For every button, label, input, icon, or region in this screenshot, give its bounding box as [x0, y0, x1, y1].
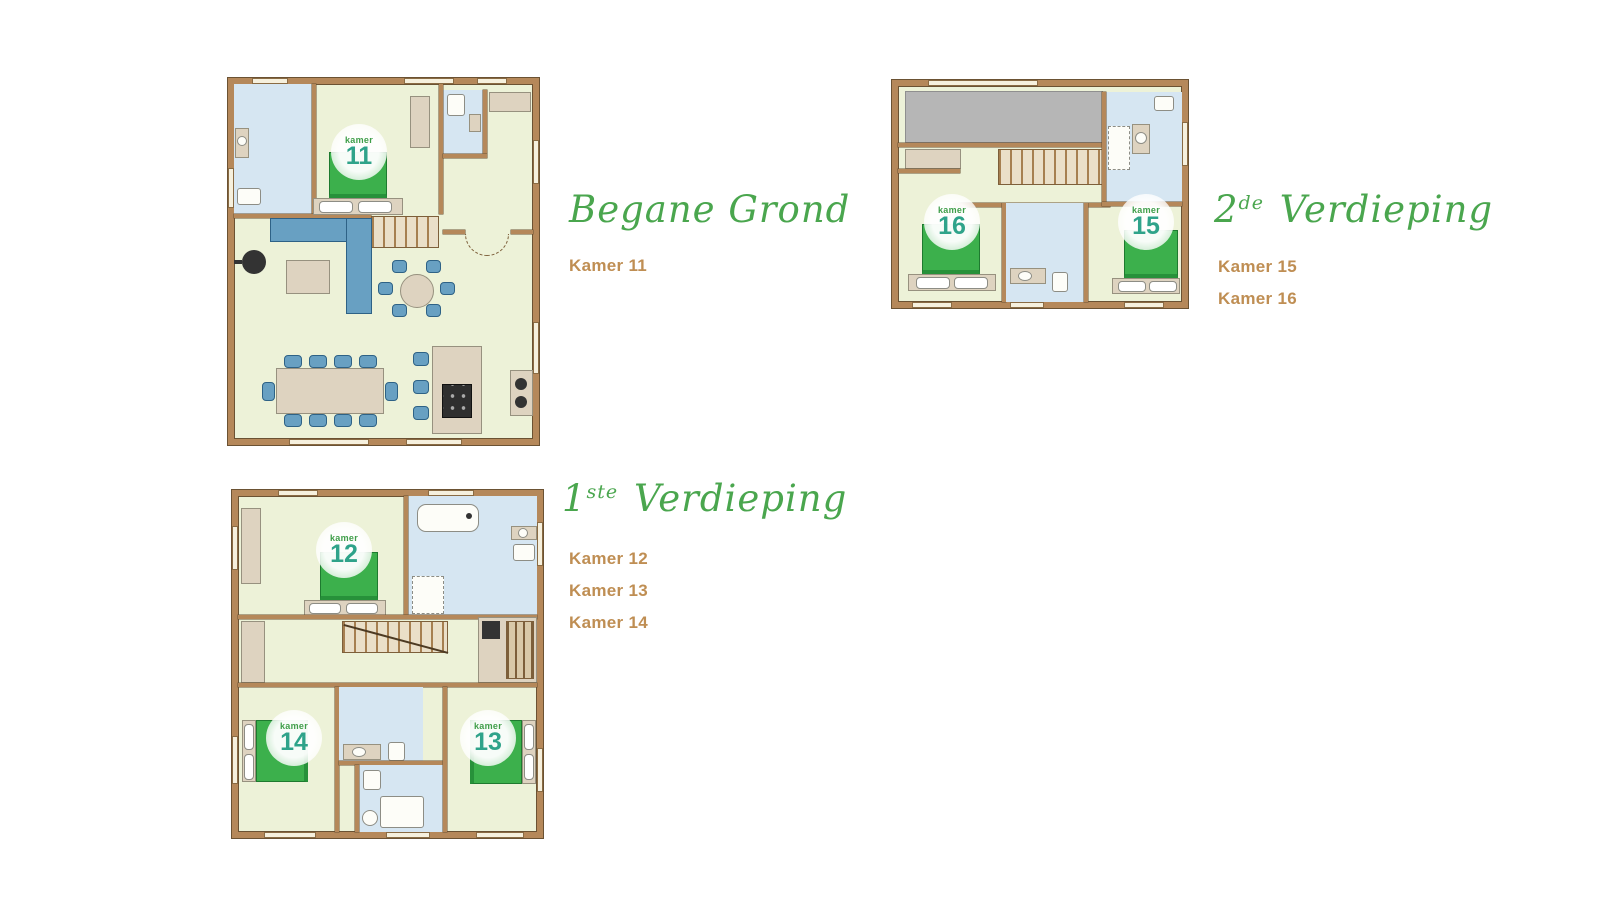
window: [278, 490, 318, 496]
window: [404, 78, 454, 84]
room-label-kamer-13: Kamer 13: [569, 581, 648, 601]
title-suffix: de: [1239, 192, 1264, 214]
kitchen-sink-counter: [510, 370, 533, 416]
bar-stool: [413, 406, 429, 420]
wood-stove: [242, 250, 266, 274]
wall: [355, 765, 359, 832]
pillow: [244, 754, 254, 780]
window: [228, 168, 234, 208]
floor-plan-eerste-verdieping: kamer 12 kamer 14 kamer 13: [232, 490, 543, 838]
sink: [237, 136, 247, 146]
chair: [426, 260, 441, 273]
badge-number: 15: [1132, 215, 1160, 239]
sink: [1135, 132, 1147, 144]
floor-plan-begane-grond: kamer 11: [228, 78, 539, 445]
wall: [483, 90, 487, 154]
room-badge-kamer-12: kamer 12: [316, 522, 372, 578]
chair: [378, 282, 393, 295]
window: [289, 439, 369, 445]
door-arc: [487, 234, 509, 256]
window: [252, 78, 288, 84]
wall: [511, 230, 533, 234]
window: [477, 78, 507, 84]
window: [533, 140, 539, 184]
bar-stool: [413, 352, 429, 366]
title-number: 1: [562, 477, 587, 520]
stairs: [371, 216, 439, 248]
pillow: [346, 603, 378, 614]
pillow: [916, 277, 950, 289]
room-badge-kamer-16: kamer 16: [924, 194, 980, 250]
pillow: [319, 201, 353, 213]
room-badge-kamer-11: kamer 11: [331, 124, 387, 180]
wall: [443, 687, 447, 832]
pillow: [1149, 281, 1177, 292]
floor-plan-tweede-verdieping: kamer 16 kamer 15: [892, 80, 1188, 308]
room-badge-kamer-14: kamer 14: [266, 710, 322, 766]
sink: [518, 528, 528, 538]
floor-title-eerste-verdieping: 1ste Verdieping: [562, 477, 847, 520]
chair: [440, 282, 455, 295]
toilet: [388, 742, 405, 761]
sink: [362, 810, 378, 826]
toilet: [447, 94, 465, 116]
shower: [380, 796, 424, 828]
chair: [359, 355, 377, 368]
room-label-kamer-14: Kamer 14: [569, 613, 648, 633]
sauna-stove: [482, 621, 500, 639]
window: [406, 439, 462, 445]
window: [928, 80, 1038, 86]
stove: [442, 384, 472, 418]
badge-number: 12: [330, 543, 358, 567]
sink-cabinet: [469, 114, 481, 132]
chair: [284, 355, 302, 368]
wardrobe: [410, 96, 430, 148]
stove-pipe: [234, 260, 242, 264]
coffee-table: [286, 260, 330, 294]
chair: [392, 260, 407, 273]
toilet: [363, 770, 381, 790]
wall: [443, 230, 465, 234]
sauna-bench: [506, 621, 534, 679]
toilet: [237, 188, 261, 205]
chair: [334, 355, 352, 368]
toilet: [1154, 96, 1174, 111]
wall: [439, 84, 443, 214]
pillow: [1118, 281, 1146, 292]
shower: [412, 576, 444, 614]
pillow: [358, 201, 392, 213]
title-name: Begane Grond: [569, 188, 850, 231]
dining-table: [276, 368, 384, 414]
room-label-kamer-15: Kamer 15: [1218, 257, 1297, 277]
wall: [1084, 203, 1088, 302]
sink: [1018, 271, 1032, 281]
room-label-kamer-12: Kamer 12: [569, 549, 648, 569]
badge-number: 11: [346, 145, 372, 169]
wall: [443, 154, 487, 158]
door-arc: [465, 234, 487, 256]
window: [533, 322, 539, 374]
cabinet: [489, 92, 531, 112]
chair: [334, 414, 352, 427]
pillow: [954, 277, 988, 289]
window: [1182, 122, 1188, 166]
badge-number: 16: [938, 215, 966, 239]
room-badge-kamer-15: kamer 15: [1118, 194, 1174, 250]
wardrobe: [241, 508, 261, 584]
sink: [352, 747, 366, 757]
title-number: 2: [1214, 188, 1239, 231]
pillow: [309, 603, 341, 614]
floor-title-begane-grond: Begane Grond: [566, 188, 850, 231]
pillow: [524, 754, 534, 780]
room-label-kamer-11: Kamer 11: [569, 256, 647, 276]
floor-title-tweede-verdieping: 2de Verdieping: [1214, 188, 1493, 231]
chair: [309, 414, 327, 427]
toilet: [513, 544, 535, 561]
drain: [466, 513, 472, 519]
title-name: Verdieping: [621, 477, 847, 520]
wall: [898, 143, 1110, 147]
title-name: Verdieping: [1267, 188, 1493, 231]
window: [912, 302, 952, 308]
window: [264, 832, 316, 838]
bathroom: [1006, 203, 1084, 302]
chair: [392, 304, 407, 317]
window: [232, 526, 238, 570]
window: [428, 490, 474, 496]
window: [1124, 302, 1164, 308]
chair: [359, 414, 377, 427]
window: [537, 748, 543, 792]
closet: [1108, 126, 1130, 170]
sink: [515, 396, 527, 408]
pillow: [244, 724, 254, 750]
chair: [262, 382, 275, 401]
round-table: [400, 274, 434, 308]
cabinet: [241, 621, 265, 683]
window: [476, 832, 524, 838]
title-suffix: ste: [587, 481, 619, 503]
wall: [898, 169, 960, 173]
window: [386, 832, 430, 838]
toilet: [1052, 272, 1068, 292]
badge-number: 13: [474, 731, 502, 755]
wall: [404, 496, 408, 619]
window: [232, 736, 238, 784]
room-badge-kamer-13: kamer 13: [460, 710, 516, 766]
bar-stool: [413, 380, 429, 394]
window: [1010, 302, 1044, 308]
wall: [1102, 92, 1106, 202]
chair: [309, 355, 327, 368]
room-label-kamer-16: Kamer 16: [1218, 289, 1297, 309]
window: [537, 522, 543, 566]
sofa: [346, 218, 372, 314]
chair: [426, 304, 441, 317]
sink: [515, 378, 527, 390]
chair: [385, 382, 398, 401]
stairs: [998, 149, 1104, 185]
pillow: [524, 724, 534, 750]
cabinet: [905, 149, 961, 169]
chair: [284, 414, 302, 427]
roof-area: [905, 91, 1103, 143]
badge-number: 14: [280, 731, 308, 755]
